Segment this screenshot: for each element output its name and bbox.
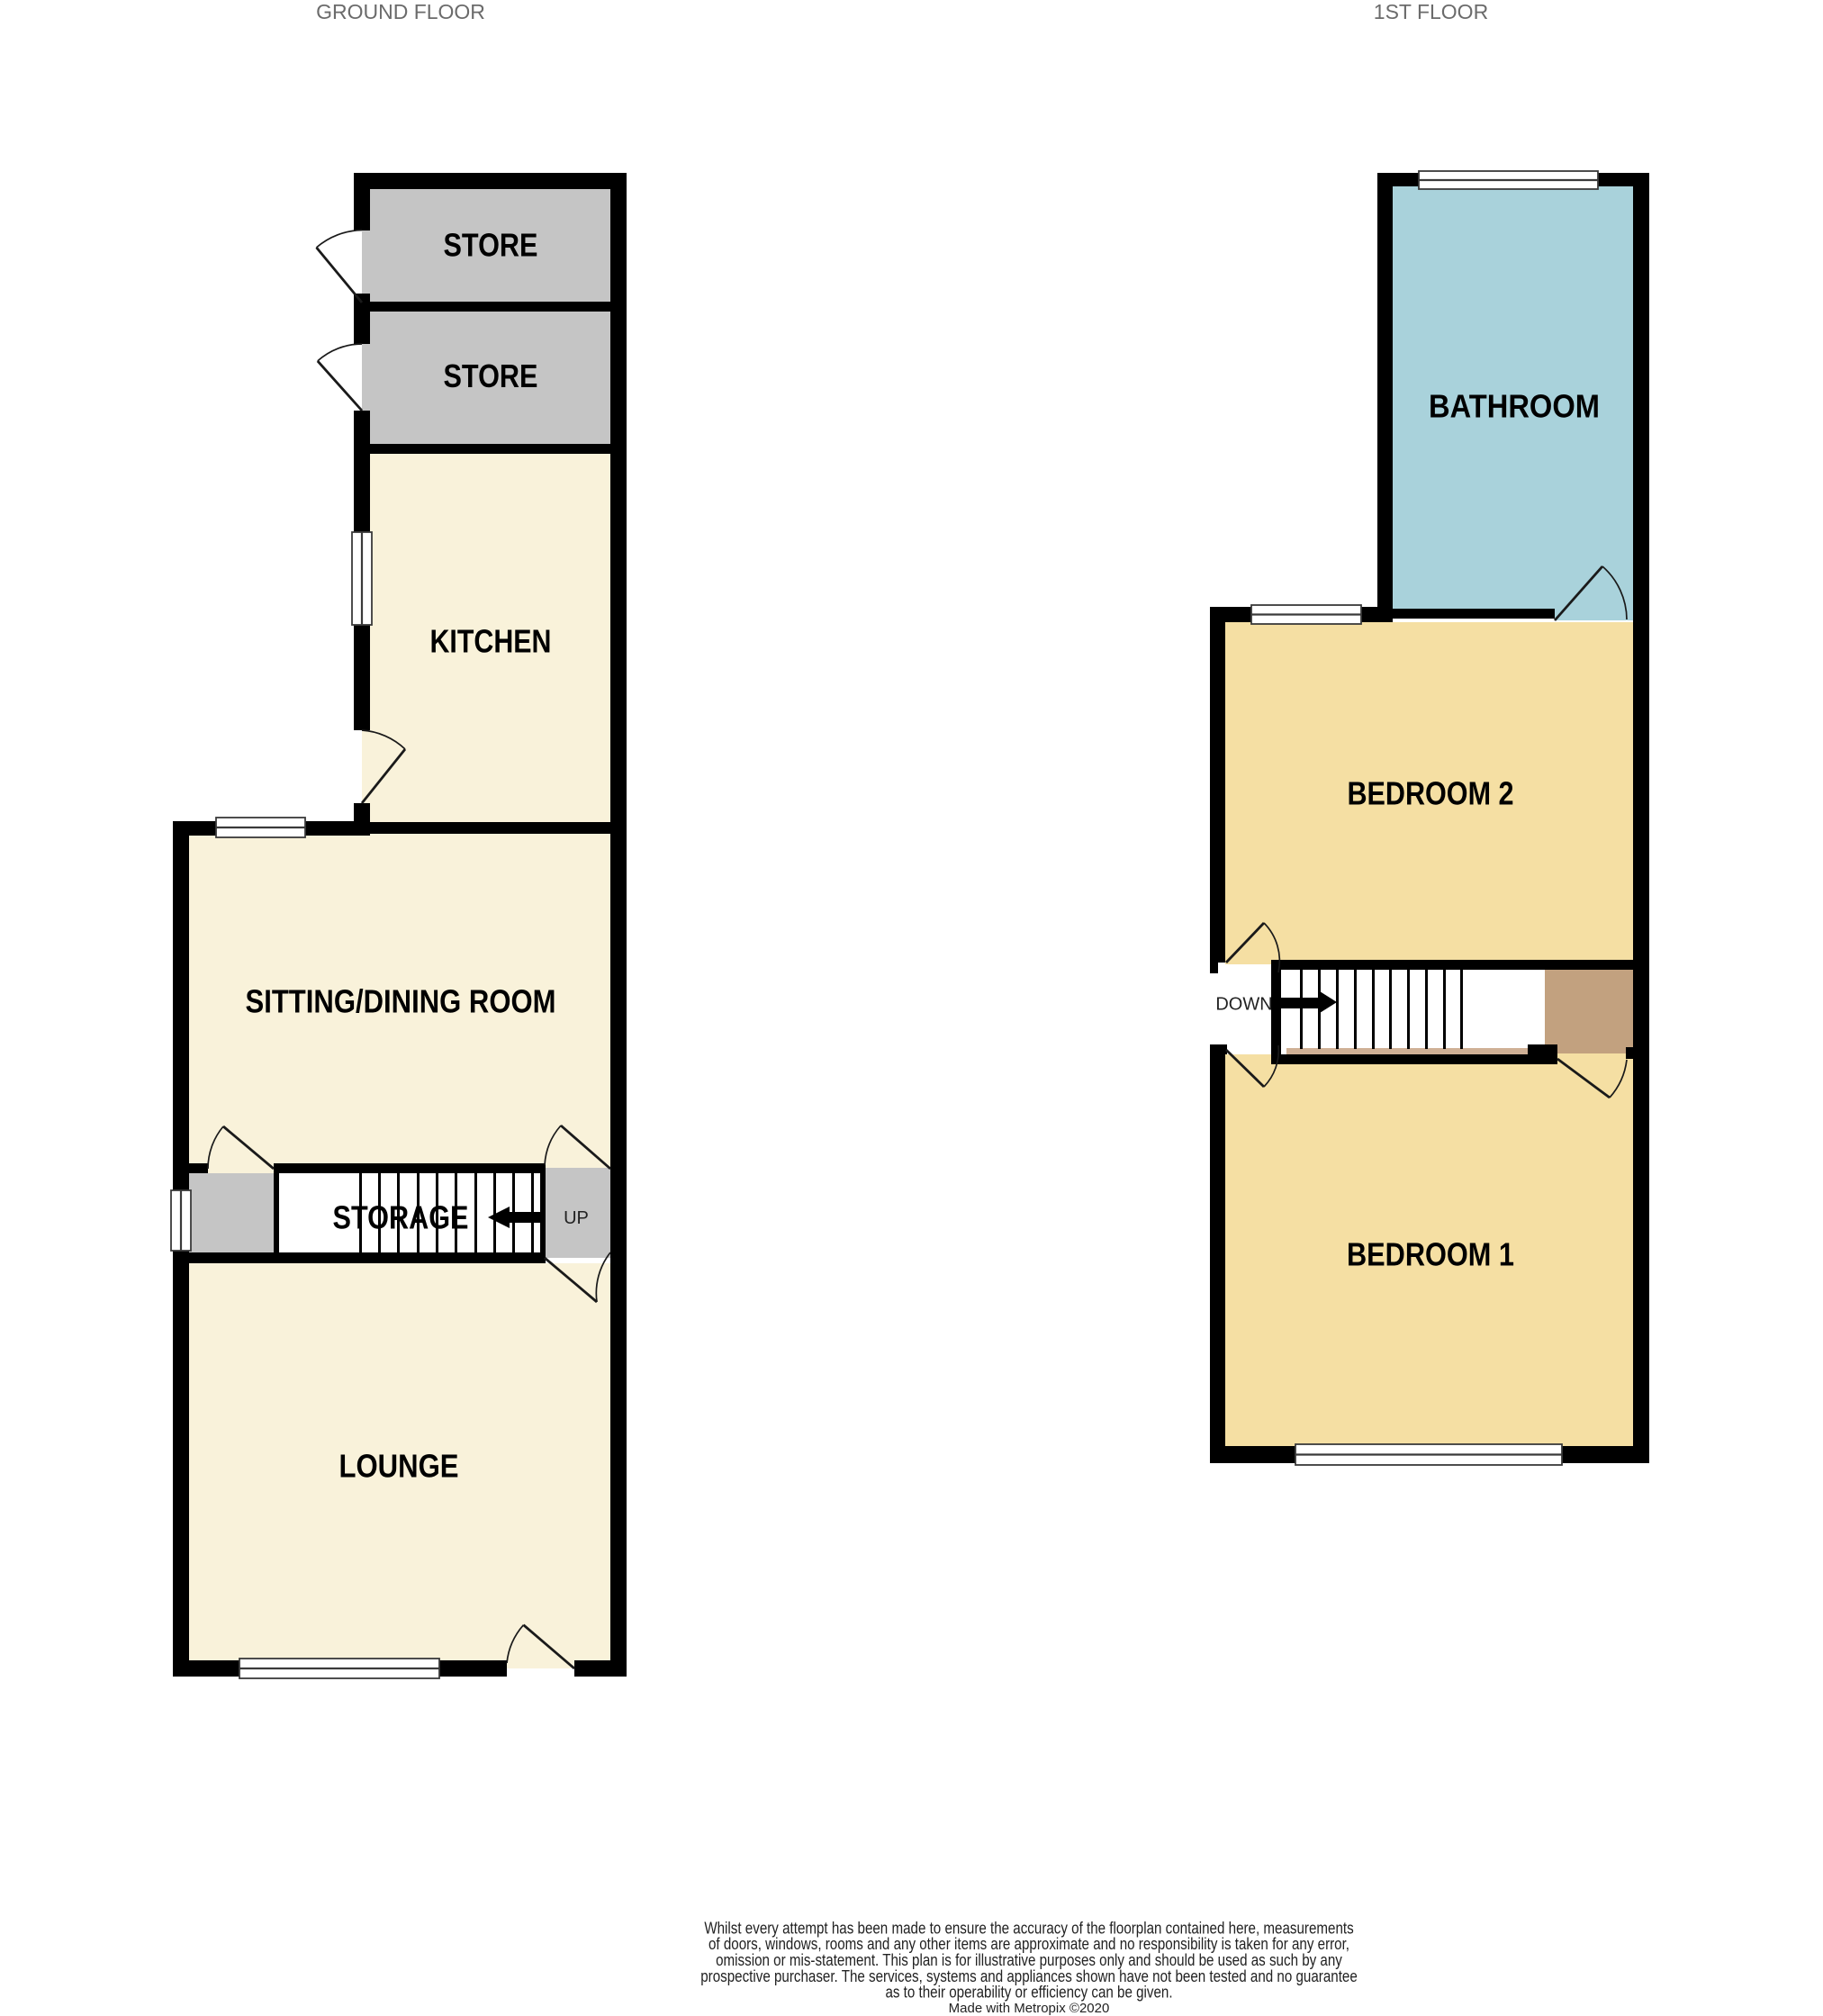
svg-text:UP: UP (564, 1208, 589, 1228)
svg-text:LOUNGE: LOUNGE (339, 1448, 459, 1485)
svg-text:BATHROOM: BATHROOM (1429, 388, 1600, 425)
svg-text:STORAGE: STORAGE (333, 1199, 469, 1236)
svg-text:KITCHEN: KITCHEN (430, 623, 552, 660)
svg-text:STORE: STORE (444, 357, 538, 394)
svg-text:GROUND FLOOR: GROUND FLOOR (316, 0, 485, 23)
svg-text:STORE: STORE (444, 227, 538, 264)
svg-text:1ST FLOOR: 1ST FLOOR (1374, 0, 1488, 23)
svg-text:BEDROOM 2: BEDROOM 2 (1348, 775, 1514, 812)
svg-text:Made with Metropix ©2020: Made with Metropix ©2020 (949, 2001, 1110, 2016)
svg-text:BEDROOM 1: BEDROOM 1 (1347, 1236, 1514, 1273)
svg-text:as to their operability or eff: as to their operability or efficiency ca… (885, 1983, 1172, 2002)
svg-text:DOWN: DOWN (1215, 995, 1272, 1015)
svg-text:SITTING/DINING ROOM: SITTING/DINING ROOM (246, 983, 556, 1020)
